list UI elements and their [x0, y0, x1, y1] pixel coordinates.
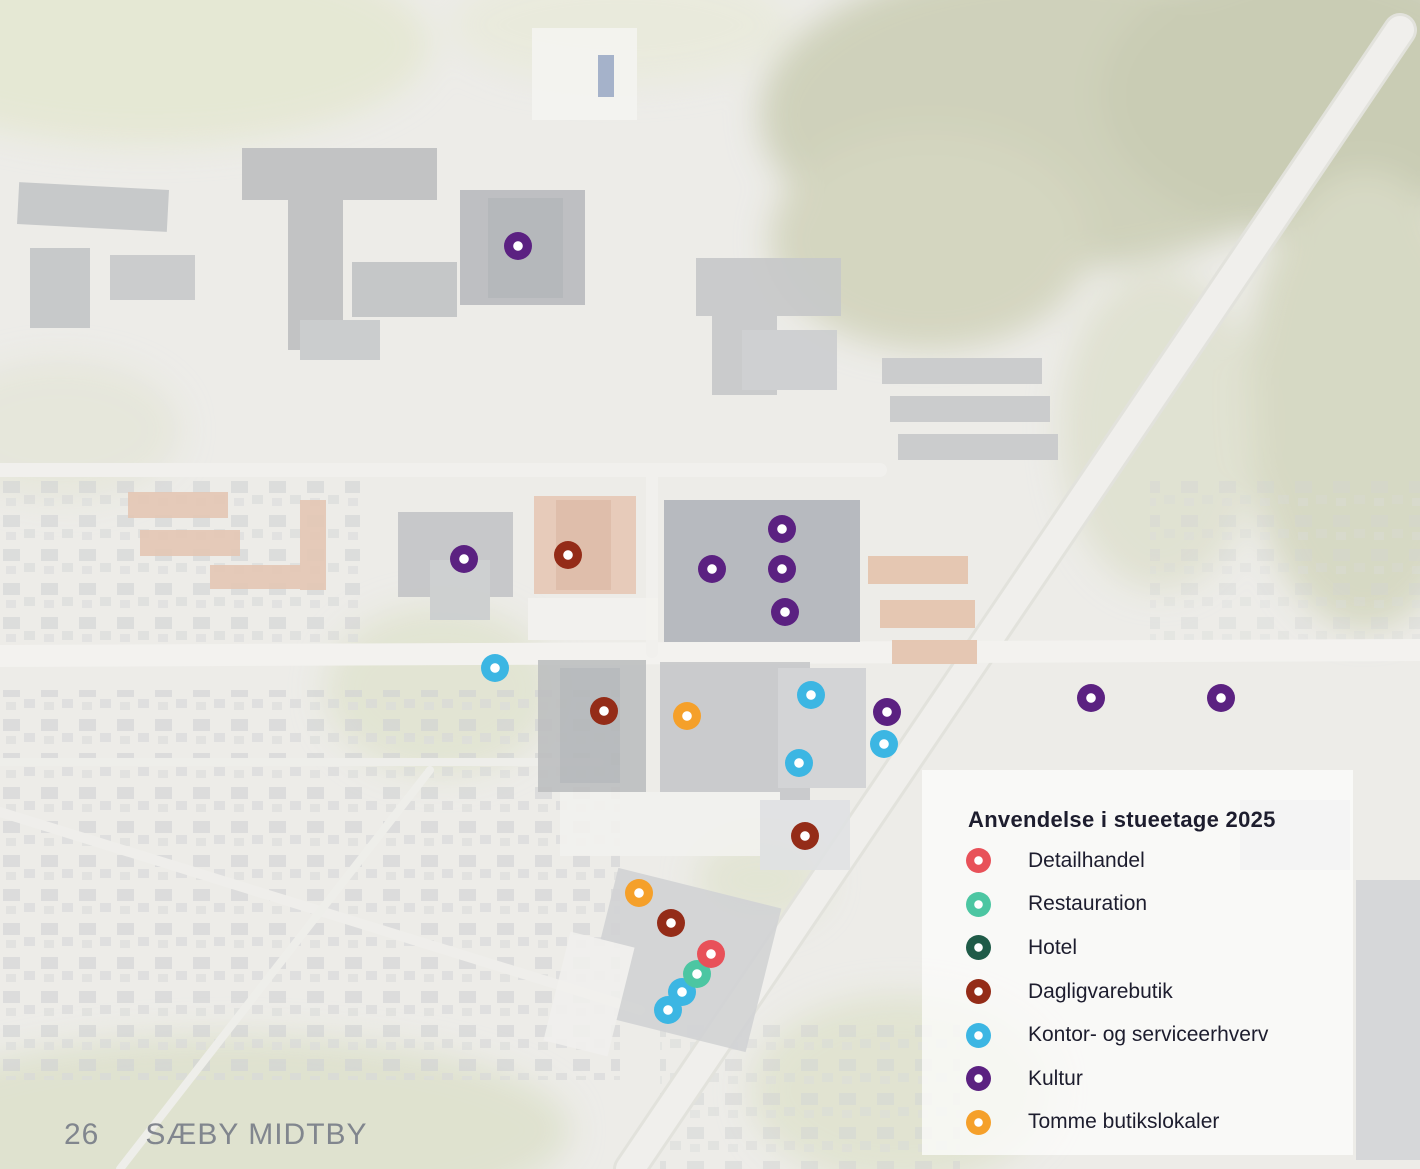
map-marker-kultur: [698, 555, 726, 583]
map-marker-dagligvarebutik: [554, 541, 582, 569]
map-marker-kontor-service: [785, 749, 813, 777]
map-marker-kultur: [450, 545, 478, 573]
footer-caption: 26 SÆBY MIDTBY: [64, 1118, 368, 1152]
legend-item-tomme: Tomme butikslokaler: [922, 1101, 1353, 1145]
map-marker-kultur: [768, 555, 796, 583]
legend-dot-kultur: [966, 1066, 991, 1091]
map-marker-kontor-service: [870, 730, 898, 758]
map-marker-tomme: [673, 702, 701, 730]
map-marker-kultur: [873, 698, 901, 726]
legend-dot-hotel: [966, 935, 991, 960]
legend-label-kultur: Kultur: [1028, 1067, 1083, 1091]
map-marker-detailhandel: [697, 940, 725, 968]
legend-dot-detailhandel: [966, 848, 991, 873]
legend-item-hotel: Hotel: [922, 926, 1353, 970]
page-title: SÆBY MIDTBY: [145, 1118, 367, 1152]
legend-label-dagligvarebutik: Dagligvarebutik: [1028, 980, 1173, 1004]
map-marker-kontor-service: [797, 681, 825, 709]
map-marker-dagligvarebutik: [657, 909, 685, 937]
map-page: Anvendelse i stueetage 2025 Detailhandel…: [0, 0, 1420, 1169]
map-marker-kultur: [768, 515, 796, 543]
map-marker-dagligvarebutik: [791, 822, 819, 850]
legend-label-hotel: Hotel: [1028, 936, 1077, 960]
legend-label-detailhandel: Detailhandel: [1028, 849, 1145, 873]
map-marker-kontor-service: [481, 654, 509, 682]
legend-item-restauration: Restauration: [922, 883, 1353, 927]
map-marker-dagligvarebutik: [590, 697, 618, 725]
legend-items: DetailhandelRestaurationHotelDagligvareb…: [922, 839, 1353, 1144]
map-marker-tomme: [625, 879, 653, 907]
legend-item-kontor-service: Kontor- og serviceerhverv: [922, 1013, 1353, 1057]
map-marker-kultur: [1207, 684, 1235, 712]
legend-dot-tomme: [966, 1110, 991, 1135]
legend-dot-kontor-service: [966, 1023, 991, 1048]
legend-dot-dagligvarebutik: [966, 979, 991, 1004]
map-marker-kultur: [1077, 684, 1105, 712]
legend-item-dagligvarebutik: Dagligvarebutik: [922, 970, 1353, 1014]
legend-item-kultur: Kultur: [922, 1057, 1353, 1101]
legend-label-restauration: Restauration: [1028, 892, 1147, 916]
map-marker-kultur: [771, 598, 799, 626]
legend-dot-restauration: [966, 892, 991, 917]
legend-item-detailhandel: Detailhandel: [922, 839, 1353, 883]
map-marker-kultur: [504, 232, 532, 260]
page-number: 26: [64, 1118, 99, 1152]
legend-panel: Anvendelse i stueetage 2025 Detailhandel…: [922, 770, 1353, 1155]
legend-title: Anvendelse i stueetage 2025: [922, 770, 1353, 833]
legend-label-tomme: Tomme butikslokaler: [1028, 1110, 1219, 1134]
legend-label-kontor-service: Kontor- og serviceerhverv: [1028, 1023, 1268, 1047]
